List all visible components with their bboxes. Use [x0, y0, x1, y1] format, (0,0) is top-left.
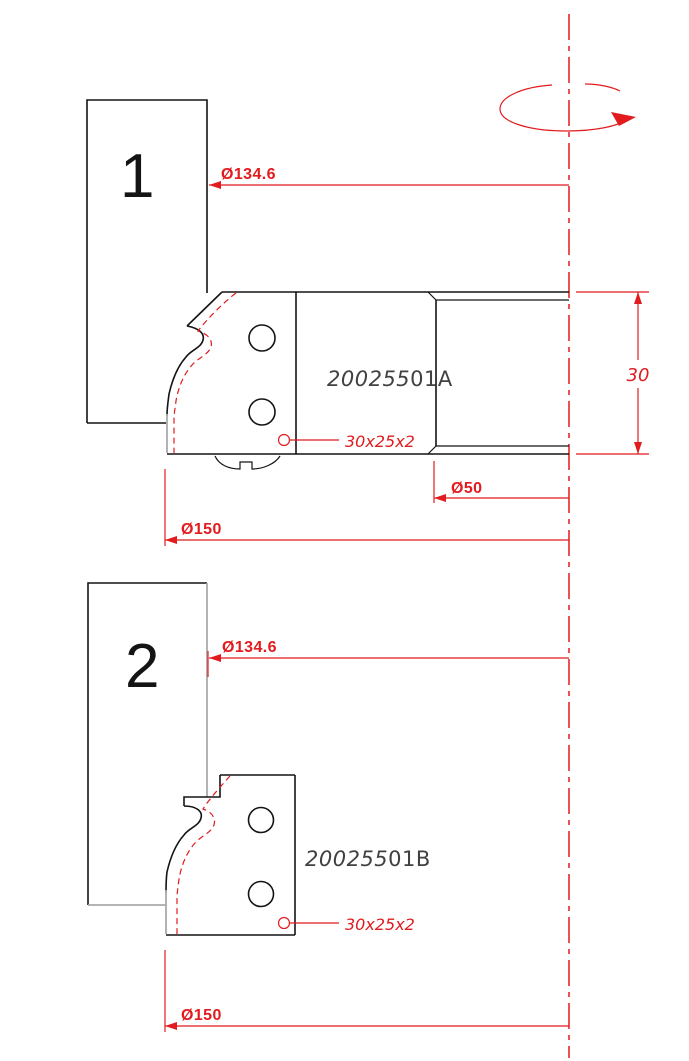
knife-note-leader-1: 30x25x2: [279, 432, 415, 451]
dim-label: Ø134.6: [221, 166, 276, 183]
knife-note-leader-2: 30x25x2: [279, 915, 415, 934]
knife-profile-dashed-1: [174, 293, 236, 453]
part-code-2: 20025501B: [305, 847, 431, 871]
dim-cutting-diameter-2: Ø134.6: [208, 639, 569, 677]
knife-size-label-1: 30x25x2: [345, 432, 415, 451]
dim-label: Ø50: [451, 480, 482, 497]
dim-cutting-diameter-1: Ø134.6: [209, 166, 569, 189]
dim-hub-diameter: Ø50: [434, 461, 569, 503]
clamp-screw-detail: [215, 456, 280, 469]
dim-body-width: 30: [576, 292, 649, 454]
rotation-direction-icon: [500, 84, 636, 131]
view-2-number: 2: [125, 632, 159, 701]
drawing-canvas: 1 20025501A: [0, 0, 689, 1061]
dim-label: Ø150: [181, 1007, 222, 1024]
screw-hole: [249, 325, 275, 351]
part-code-1: 20025501A: [327, 367, 453, 391]
screw-hole: [249, 882, 274, 907]
screw-hole: [249, 808, 274, 833]
view-1-number: 1: [120, 142, 154, 211]
knife-size-label-2: 30x25x2: [345, 915, 415, 934]
technical-drawing: 1 20025501A: [0, 0, 689, 1061]
knife-plate-2: [166, 775, 295, 935]
dim-label: Ø134.6: [222, 639, 277, 656]
dim-max-diameter-2: Ø150: [165, 950, 569, 1032]
knife-profile-dashed-2: [177, 776, 230, 934]
screw-hole: [249, 399, 275, 425]
dim-max-diameter-1: Ø150: [165, 469, 569, 546]
dim-label: Ø150: [181, 521, 222, 538]
dim-label: 30: [627, 365, 650, 386]
view-1: 1 20025501A: [87, 100, 649, 546]
view-2: 2 20025501B 30x25x2 Ø134.: [88, 583, 569, 1032]
